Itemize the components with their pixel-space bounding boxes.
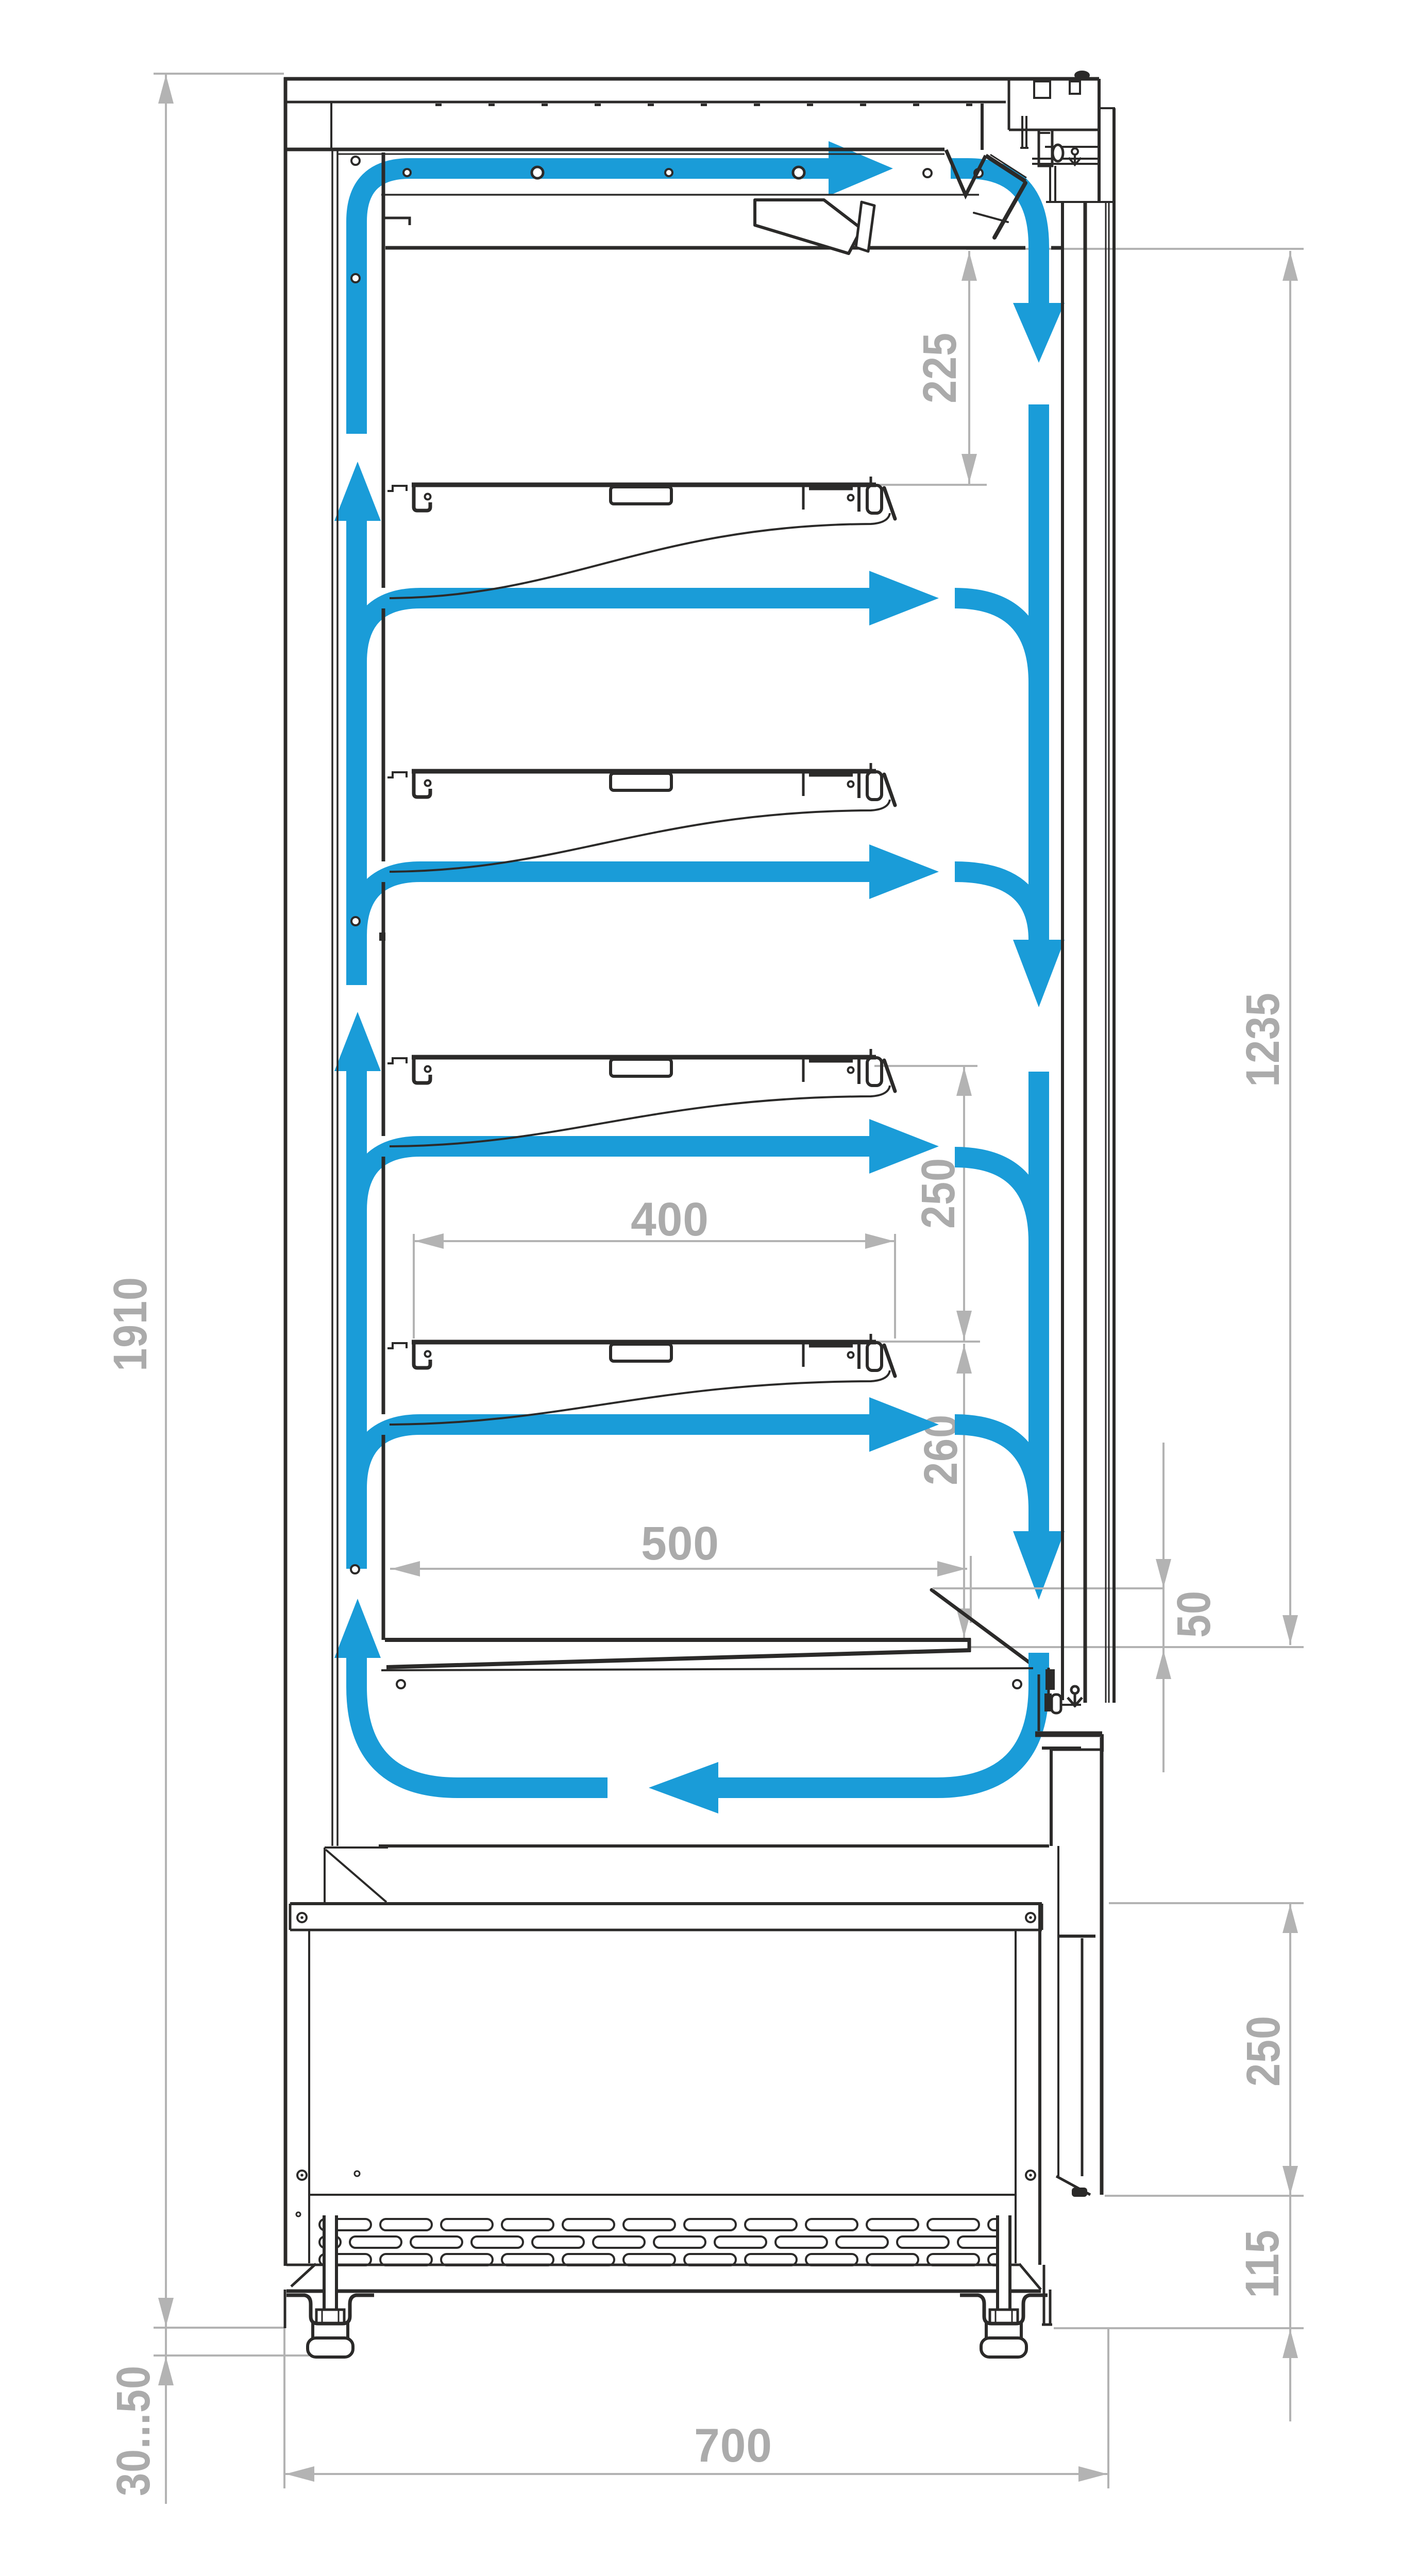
svg-text:30...50: 30...50 (107, 2365, 160, 2496)
svg-text:700: 700 (694, 2419, 772, 2472)
svg-text:500: 500 (641, 1517, 719, 1570)
svg-text:400: 400 (631, 1193, 709, 1246)
svg-text:225: 225 (914, 332, 966, 403)
svg-text:250: 250 (1237, 2015, 1290, 2087)
svg-text:50: 50 (1168, 1590, 1220, 1638)
svg-text:1235: 1235 (1237, 992, 1289, 1087)
svg-text:115: 115 (1236, 2229, 1289, 2298)
svg-text:1910: 1910 (104, 1277, 157, 1371)
svg-text:250: 250 (912, 1158, 965, 1229)
